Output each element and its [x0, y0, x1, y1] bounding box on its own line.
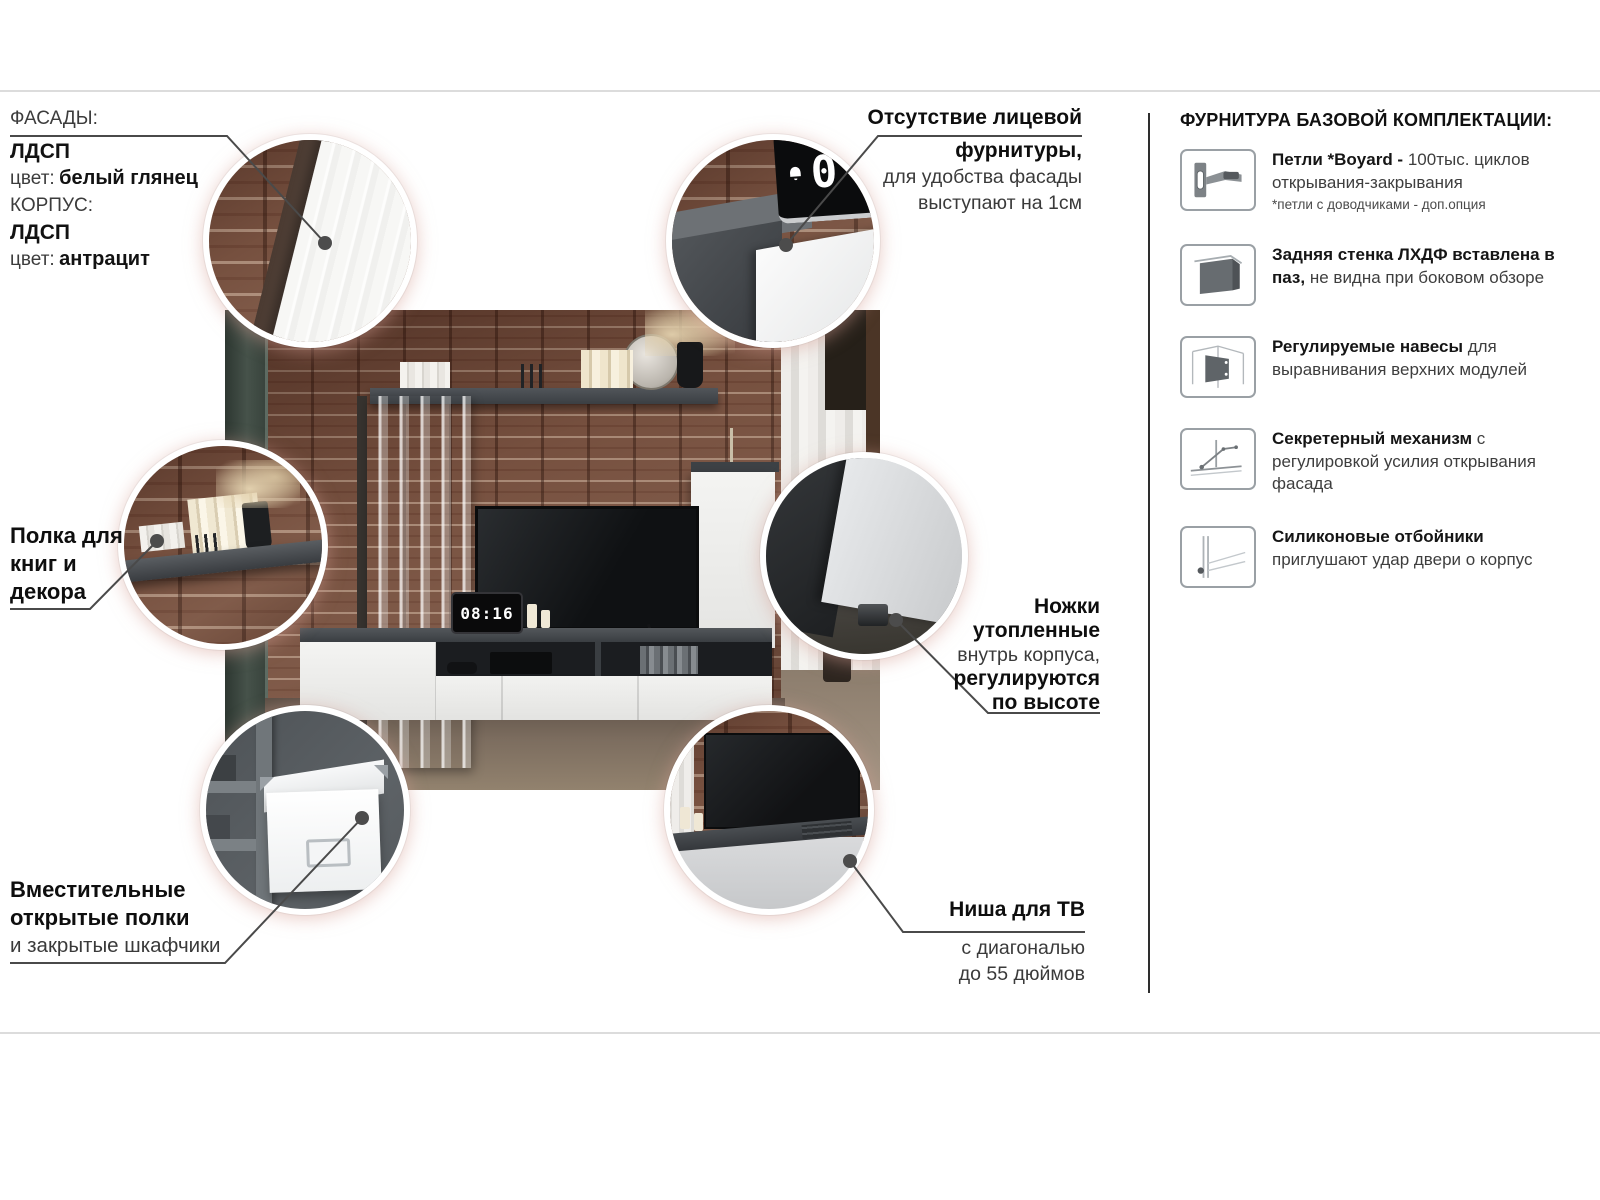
- silicone-bumper-icon: [1189, 534, 1247, 580]
- hardware-item-text: Силиконовые отбойники приглушают удар дв…: [1272, 526, 1570, 588]
- hardware-item-name: Силиконовые отбойники: [1272, 527, 1484, 546]
- list-item: Секретерный механизм с регулировкой усил…: [1180, 428, 1572, 496]
- tv-niche-block: Ниша для ТВ с диагональю до 55 дюймов: [855, 897, 1085, 987]
- list-item: Регулируемые навесы для выравнивания вер…: [1180, 336, 1572, 398]
- hardware-item-name: Петли *Boyard -: [1272, 150, 1403, 169]
- front-hardware-line4: выступают на 1см: [830, 190, 1082, 216]
- hardware-item-text: Петли *Boyard - 100тыс. циклов открывани…: [1272, 149, 1570, 214]
- book-shelf-line3: декора: [10, 578, 190, 606]
- gamepad: [447, 662, 477, 674]
- digital-clock: 08:16: [451, 592, 523, 634]
- front-hardware-block: Отсутствие лицевой фурнитуры, для удобст…: [830, 105, 1082, 216]
- hardware-item-name: Секретерный механизм: [1272, 429, 1472, 448]
- book-shelf-block: Полка для книг и декора: [10, 522, 190, 606]
- facades-color-value: белый глянец: [59, 167, 198, 189]
- body-color-value: антрацит: [59, 248, 150, 270]
- legs-line4: регулируются: [880, 667, 1100, 691]
- list-item: Силиконовые отбойники приглушают удар дв…: [1180, 526, 1572, 588]
- list-item: Петли *Boyard - 100тыс. циклов открывани…: [1180, 149, 1572, 214]
- infographic-page: 08:16 0: [0, 0, 1600, 1200]
- body-color-line: цвет: антрацит: [10, 246, 290, 274]
- bottom-divider-line: [0, 1032, 1600, 1034]
- box-label-holder: [306, 838, 351, 868]
- hardware-item-desc: приглушают удар двери о корпус: [1272, 550, 1533, 569]
- books-decor-2: [400, 362, 450, 388]
- color-label: цвет:: [10, 249, 55, 270]
- sidebar-vertical-rule: [1148, 113, 1150, 993]
- hardware-icon-frame: [1180, 149, 1256, 211]
- body-label: КОРПУС:: [10, 193, 290, 219]
- legs-line5: по высоте: [880, 691, 1100, 715]
- tv-niche-zoom-circle: [664, 705, 874, 915]
- storage-block: Вместительные открытые полки и закрытые …: [10, 876, 270, 960]
- legs-line3: внутрь корпуса,: [880, 643, 1100, 667]
- book-shelf-line1: Полка для: [10, 522, 190, 550]
- cabinet-hanger-icon: [1189, 344, 1247, 390]
- materials-block: ФАСАДЫ: ЛДСП цвет: белый глянец КОРПУС: …: [10, 106, 290, 274]
- hardware-icon-frame: [1180, 336, 1256, 398]
- storage-line2: открытые полки: [10, 904, 270, 932]
- legs-line2: утопленные: [880, 619, 1100, 643]
- legs-line1: Ножки: [880, 595, 1100, 619]
- hinge-icon: [1189, 157, 1247, 203]
- clock-time: 08:16: [460, 604, 513, 623]
- tv-niche-line3: до 55 дюймов: [855, 961, 1085, 987]
- hardware-panel-title: ФУРНИТУРА БАЗОВОЙ КОМПЛЕКТАЦИИ:: [1180, 110, 1572, 131]
- color-label: цвет:: [10, 168, 55, 189]
- legs-block: Ножки утопленные внутрь корпуса, регулир…: [880, 595, 1100, 715]
- shelf-vase: [242, 501, 273, 551]
- tv-niche-line2: с диагональю: [855, 935, 1085, 961]
- hardware-item-text: Секретерный механизм с регулировкой усил…: [1272, 428, 1570, 496]
- shelf-pampas: [216, 460, 300, 508]
- storage-box: [266, 789, 381, 893]
- candle-holder: [521, 364, 543, 388]
- front-hardware-line3: для удобства фасады: [830, 164, 1082, 190]
- bell-icon: [787, 165, 803, 183]
- hardware-list: Петли *Boyard - 100тыс. циклов открывани…: [1180, 149, 1572, 588]
- shelf-items: [200, 755, 236, 781]
- books-decor: [581, 350, 633, 388]
- back-panel-icon: [1189, 252, 1247, 298]
- front-hardware-line1: Отсутствие лицевой: [830, 105, 1082, 131]
- decor-stick: [730, 428, 733, 462]
- hardware-icon-frame: [1180, 244, 1256, 306]
- hardware-icon-frame: [1180, 526, 1256, 588]
- open-shelf-1: [200, 781, 256, 793]
- niche-candle-2: [694, 813, 703, 831]
- hardware-item-text: Регулируемые навесы для выравнивания вер…: [1272, 336, 1570, 398]
- niche-divider: [595, 642, 601, 676]
- tv-niche-line1: Ниша для ТВ: [855, 897, 1085, 923]
- storage-line1: Вместительные: [10, 876, 270, 904]
- list-item: Задняя стенка ЛХДФ вставлена в паз, не в…: [1180, 244, 1572, 306]
- book-shelf-line2: книг и: [10, 550, 190, 578]
- storage-line3: и закрытые шкафчики: [10, 932, 270, 960]
- game-console: [490, 652, 552, 674]
- vase: [677, 342, 703, 388]
- hardware-icon-frame: [1180, 428, 1256, 490]
- stand-open-niche: [435, 642, 772, 676]
- body-material: ЛДСП: [10, 219, 290, 246]
- niche-tv-screen: [704, 733, 860, 829]
- facades-label: ФАСАДЫ:: [10, 106, 290, 132]
- candle-2: [541, 610, 550, 628]
- front-hardware-line2: фурнитуры,: [830, 138, 1082, 164]
- top-divider-line: [0, 90, 1600, 92]
- hardware-item-text: Задняя стенка ЛХДФ вставлена в паз, не в…: [1272, 244, 1570, 306]
- shelf-items-2: [200, 815, 230, 839]
- facades-color-line: цвет: белый глянец: [10, 165, 290, 193]
- niche-books: [640, 646, 698, 674]
- niche-candle-1: [680, 807, 690, 829]
- candle-1: [527, 604, 537, 628]
- hardware-item-note: *петли с доводчиками - доп.опция: [1272, 196, 1570, 214]
- facades-material: ЛДСП: [10, 138, 290, 165]
- open-shelf-2: [200, 839, 256, 851]
- hardware-item-desc: не видна при боковом обзоре: [1310, 268, 1544, 287]
- stand-top-shelf: [300, 628, 772, 642]
- flap-mechanism-icon: [1189, 436, 1247, 482]
- hardware-panel: ФУРНИТУРА БАЗОВОЙ КОМПЛЕКТАЦИИ: Петли *B…: [1180, 110, 1572, 588]
- hardware-item-name: Регулируемые навесы: [1272, 337, 1463, 356]
